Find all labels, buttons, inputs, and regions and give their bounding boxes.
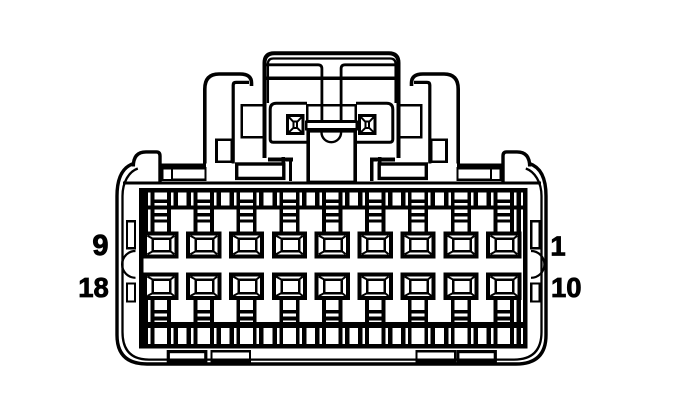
svg-text:9: 9 [92,230,108,262]
svg-text:18: 18 [78,272,109,303]
svg-text:10: 10 [551,272,582,303]
svg-text:1: 1 [550,231,565,262]
